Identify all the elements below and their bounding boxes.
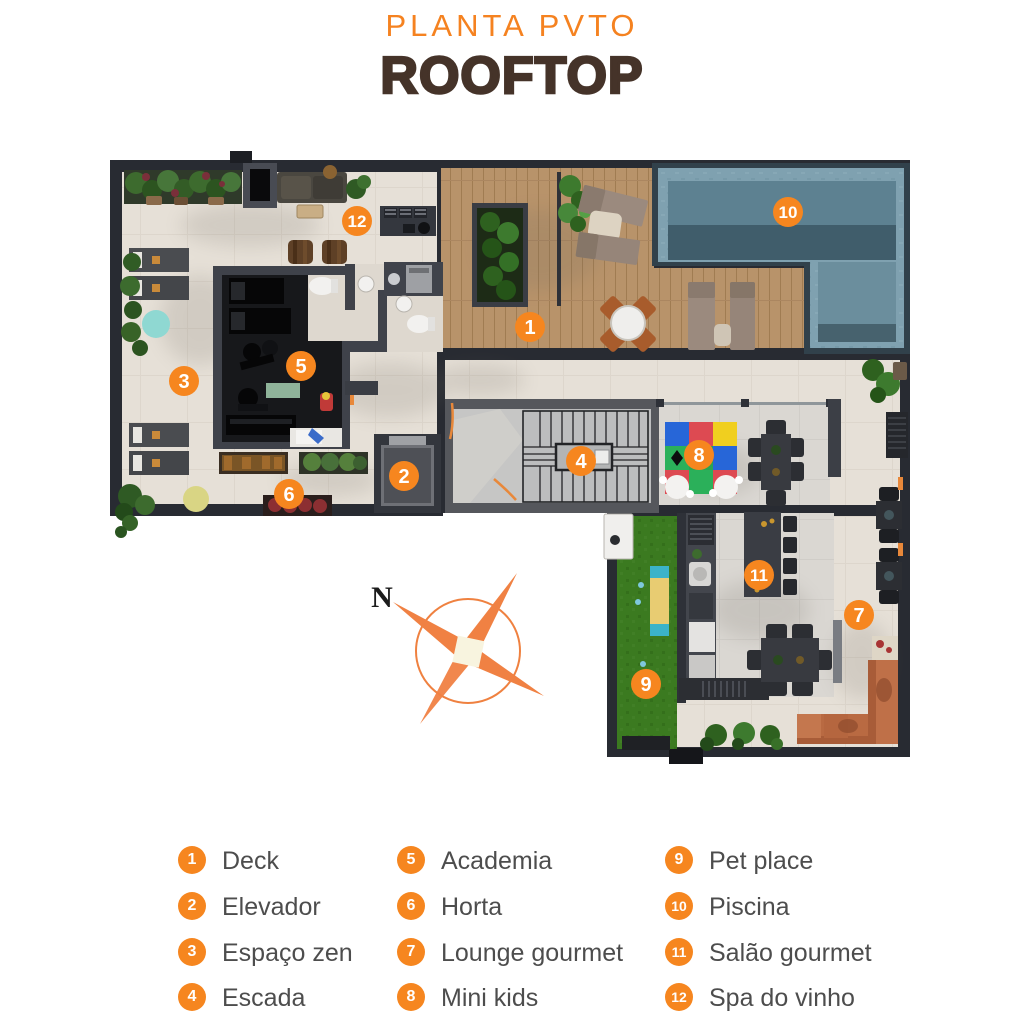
svg-text:8: 8: [693, 445, 704, 467]
svg-text:1: 1: [524, 317, 535, 339]
svg-text:3: 3: [178, 371, 189, 393]
svg-text:7: 7: [853, 605, 864, 627]
svg-text:9: 9: [640, 674, 651, 696]
svg-text:12: 12: [348, 212, 367, 231]
svg-text:2: 2: [398, 466, 409, 488]
svg-text:N: N: [371, 581, 393, 614]
svg-text:6: 6: [283, 484, 294, 506]
svg-text:5: 5: [295, 356, 306, 378]
svg-text:4: 4: [575, 451, 587, 473]
svg-text:10: 10: [779, 203, 798, 222]
svg-text:11: 11: [750, 566, 768, 585]
